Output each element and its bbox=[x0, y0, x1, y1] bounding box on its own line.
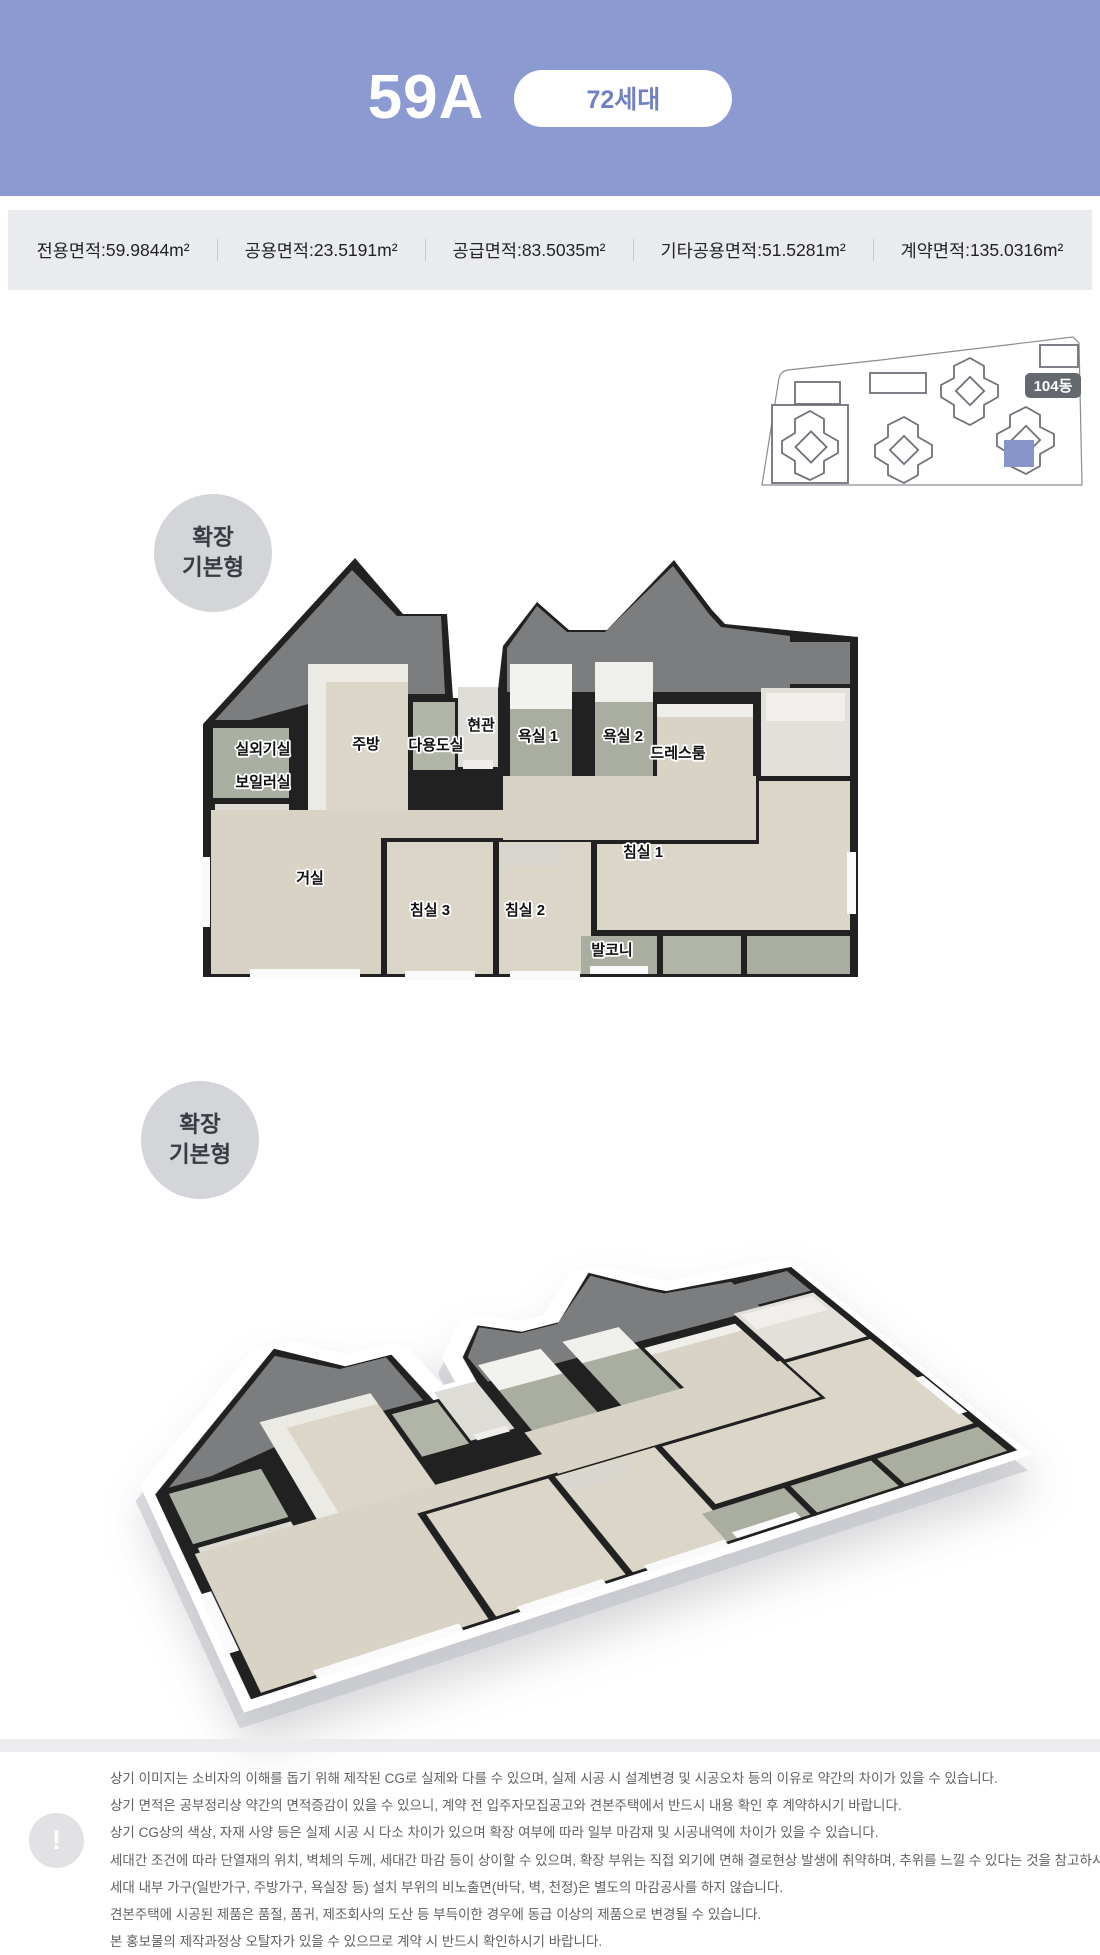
room-label-entry: 현관 bbox=[467, 717, 495, 734]
spec-exclusive-area: 전용면적 : 59.9844m² bbox=[37, 238, 190, 263]
floor-plan-2d: 실외기실 보일러실 주방 다용도실 현관 욕실 1 욕실 2 드레스룸 거실 침… bbox=[195, 552, 865, 987]
disclaimer-line: 세대 내부 가구(일반가구, 주방가구, 욕실장 등) 설치 부위의 비노출면(… bbox=[110, 1874, 1070, 1901]
room-label-bath2: 욕실 2 bbox=[603, 728, 643, 745]
households-badge-label: 72세대 bbox=[586, 80, 660, 116]
section-divider bbox=[0, 1739, 1100, 1752]
households-badge: 72세대 bbox=[514, 70, 732, 127]
room-label-outdoor-unit: 실외기실 bbox=[235, 740, 290, 758]
room-label-living: 거실 bbox=[296, 870, 324, 887]
disclaimer-line: 견본주택에 시공된 제품은 품절, 품귀, 제조회사의 도산 등 부득이한 경우… bbox=[110, 1901, 1070, 1928]
room-label-utility: 다용도실 bbox=[408, 737, 463, 754]
spec-label: 계약면적 bbox=[901, 238, 965, 263]
exclamation-icon: ! bbox=[29, 1813, 84, 1868]
badge-line1: 확장 bbox=[179, 1110, 220, 1140]
divider bbox=[873, 239, 874, 261]
spec-value: 59.9844m² bbox=[106, 240, 190, 261]
spec-value: 23.5191m² bbox=[314, 240, 398, 261]
disclaimer-line: 세대간 조건에 따라 단열재의 위치, 벽체의 두께, 세대간 마감 등이 상이… bbox=[110, 1847, 1070, 1874]
spec-label: 공용면적 bbox=[245, 238, 309, 263]
spec-common-area: 공용면적 : 23.5191m² bbox=[245, 238, 398, 263]
room-label-bath1: 욕실 1 bbox=[518, 728, 558, 745]
disclaimer-line: 상기 CG상의 색상, 자재 사양 등은 실제 시공 시 다소 차이가 있으며 … bbox=[110, 1819, 1070, 1846]
highlighted-unit bbox=[1004, 440, 1034, 467]
room-label-dressroom: 드레스룸 bbox=[650, 745, 705, 762]
spec-value: 135.0316m² bbox=[970, 240, 1063, 261]
building-annex bbox=[795, 382, 840, 404]
room-label-bedroom2: 침실 2 bbox=[505, 902, 545, 919]
room-label-bedroom1: 침실 1 bbox=[623, 844, 663, 861]
room-label-boiler: 보일러실 bbox=[235, 774, 290, 791]
spec-supply-area: 공급면적 : 83.5035m² bbox=[453, 238, 606, 263]
unit-header: 59A 72세대 bbox=[0, 0, 1100, 196]
divider bbox=[425, 239, 426, 261]
building-annex bbox=[870, 373, 926, 393]
spec-label: 기타공용면적 bbox=[661, 238, 758, 263]
floor-plan-3d-svg bbox=[96, 1228, 1032, 1712]
room-label-balcony: 발코니 bbox=[591, 942, 632, 959]
unit-type-title: 59A bbox=[368, 67, 485, 129]
disclaimer-line: 상기 이미지는 소비자의 이해를 돕기 위해 제작된 CG로 실제와 다를 수 … bbox=[110, 1765, 1070, 1792]
area-spec-bar: 전용면적 : 59.9844m² 공용면적 : 23.5191m² 공급면적 :… bbox=[8, 210, 1092, 290]
building-number-badge: 104동 bbox=[1025, 373, 1081, 398]
spec-label: 전용면적 bbox=[37, 238, 101, 263]
divider bbox=[633, 239, 634, 261]
divider bbox=[217, 239, 218, 261]
building-number-label: 104동 bbox=[1034, 378, 1073, 395]
room-label-kitchen: 주방 bbox=[352, 735, 380, 753]
disclaimer-line: 상기 면적은 공부정리상 약간의 면적증감이 있을 수 있으니, 계약 전 입주… bbox=[110, 1792, 1070, 1819]
spec-contract-area: 계약면적 : 135.0316m² bbox=[901, 238, 1064, 263]
spec-label: 공급면적 bbox=[453, 238, 517, 263]
room-label-bedroom3: 침실 3 bbox=[410, 902, 450, 919]
spec-other-common-area: 기타공용면적 : 51.5281m² bbox=[661, 238, 846, 263]
disclaimer-line: 본 홍보물의 제작과정상 오탈자가 있을 수 있으므로 계약 시 반드시 확인하… bbox=[110, 1928, 1070, 1955]
badge-line1: 확장 bbox=[192, 523, 233, 553]
site-location-map: 104동 bbox=[748, 333, 1093, 493]
floor-plan-3d bbox=[130, 1140, 970, 1700]
spec-value: 51.5281m² bbox=[762, 240, 846, 261]
spec-value: 83.5035m² bbox=[522, 240, 606, 261]
building-annex bbox=[1040, 345, 1078, 367]
disclaimer-text-block: 상기 이미지는 소비자의 이해를 돕기 위해 제작된 CG로 실제와 다를 수 … bbox=[110, 1765, 1070, 1955]
